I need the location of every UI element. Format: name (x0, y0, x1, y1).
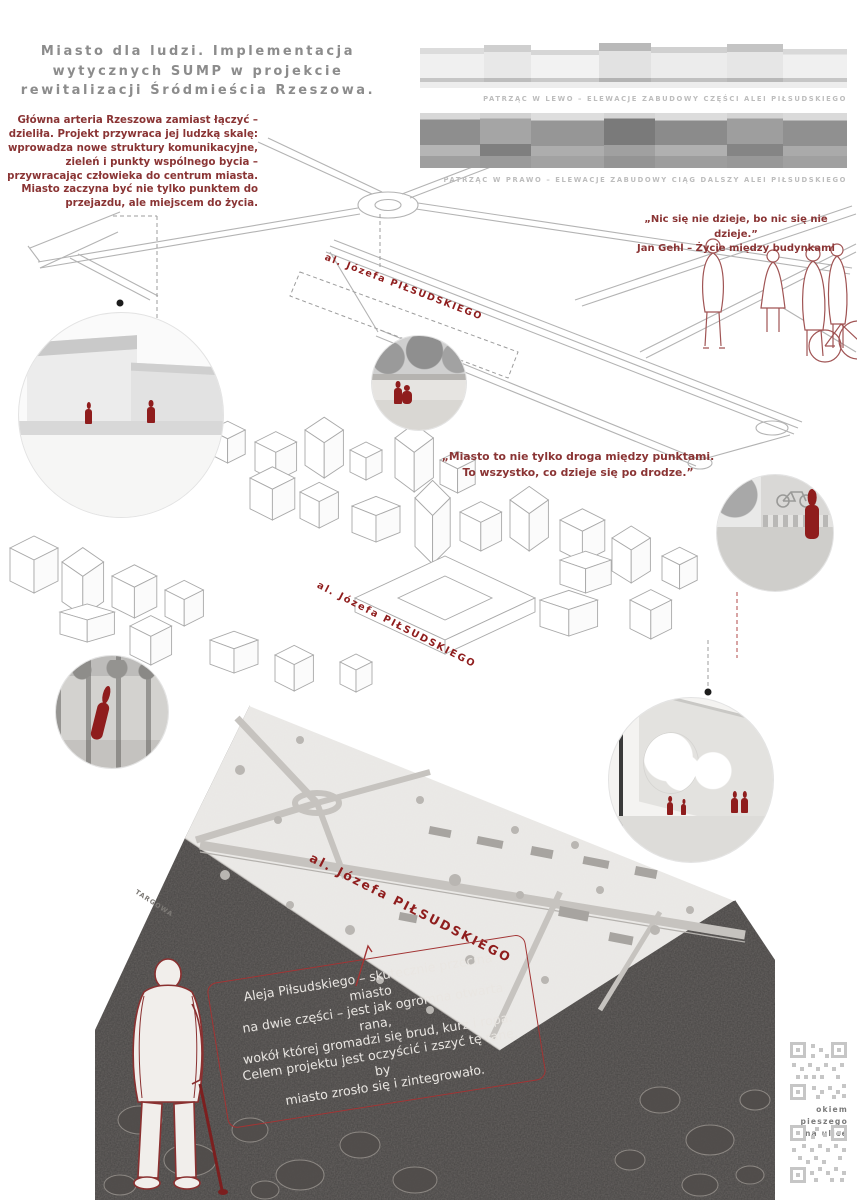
elevation-segment (484, 38, 531, 88)
old-man-sketch (92, 952, 252, 1200)
vignette-bike-parking (716, 474, 834, 592)
pavement (609, 816, 773, 862)
cane (200, 1084, 222, 1190)
elevation-segment (604, 113, 655, 168)
bike-racks (763, 515, 833, 527)
elevation-segment (783, 38, 847, 88)
vignette-house (371, 335, 467, 431)
elevation-segment (531, 38, 599, 88)
intro-paragraph: Główna arteria Rzeszowa zamiast łączyć –… (6, 114, 258, 211)
hedge-band (19, 421, 223, 435)
elevation-segment (727, 113, 783, 168)
quote-jan-gehl: „Nic się nie dzieje, bo nic się nie dzie… (622, 213, 850, 257)
elevation-segment (783, 113, 847, 168)
red-figure (731, 798, 738, 813)
white-tree (693, 750, 733, 796)
red-figure-walking (805, 505, 819, 539)
garden (372, 400, 466, 430)
vignette-pergola-cafe (55, 655, 169, 769)
elevation-caption-left: PATRZĄC W LEWO – ELEWACJE ZABUDOWY CZĘŚC… (420, 95, 847, 103)
elevation-segment (420, 38, 484, 88)
red-figure-wheelchair (402, 391, 412, 404)
elevation-segment (531, 113, 604, 168)
qr-code-top (790, 1042, 847, 1100)
vignette-street-corner (18, 312, 224, 518)
poster-board: Miasto dla ludzi. Implementacja wytyczny… (0, 0, 857, 1200)
elevation-segment (655, 113, 728, 168)
elevation-segment (651, 38, 728, 88)
elevation-strip-right (420, 113, 847, 168)
red-figure (681, 804, 686, 815)
quote-city: „Miasto to nie tylko droga między punkta… (438, 449, 718, 480)
red-figure (85, 409, 92, 424)
pergola-foliage (62, 660, 162, 680)
vignette-white-wall (608, 697, 774, 863)
red-figure (147, 407, 155, 423)
elevation-segment (727, 38, 783, 88)
red-figure (394, 388, 402, 404)
elevation-segment (420, 113, 480, 168)
red-figure (741, 798, 748, 813)
elevation-segment (480, 113, 531, 168)
trees (371, 335, 467, 376)
connector-dot (117, 300, 124, 307)
elevation-caption-right: PATRZĄC W PRAWO – ELEWACJE ZABUDOWY CIĄG… (420, 176, 847, 184)
white-tree (643, 732, 699, 794)
ground (19, 435, 223, 517)
elevation-segment (599, 38, 650, 88)
elevation-strip-left (420, 38, 847, 88)
red-figure (667, 802, 673, 815)
poster-title: Miasto dla ludzi. Implementacja wytyczny… (16, 42, 380, 101)
qr-code-bottom (790, 1125, 847, 1183)
